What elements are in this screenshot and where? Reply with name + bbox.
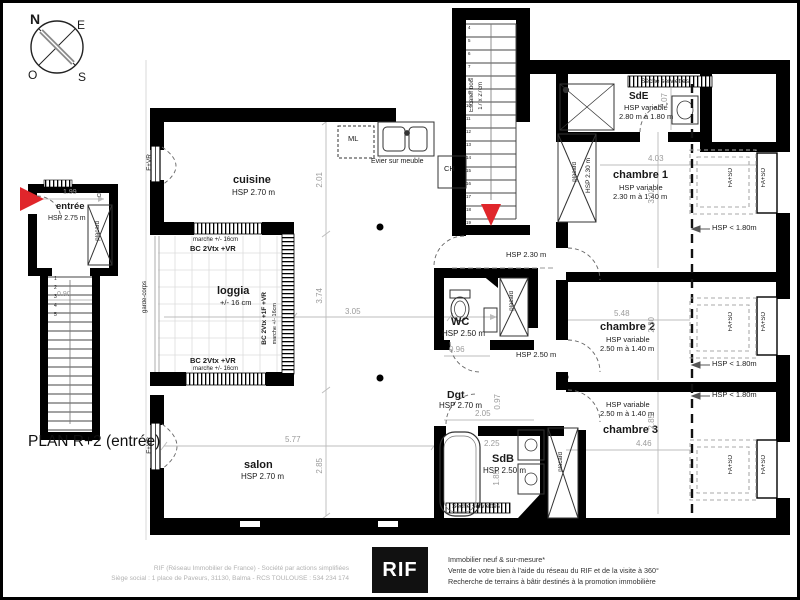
step-14: 14	[466, 156, 471, 161]
dim-salon-width: 5.77	[285, 436, 301, 444]
room-hsp-salon: HSP 2.70 m	[241, 473, 284, 481]
dim-cuisine-height: 2.01	[316, 172, 324, 188]
step-12: 12	[466, 130, 471, 135]
door-arcs	[37, 104, 668, 469]
room-hsp-chambre2: HSP variable	[606, 336, 650, 344]
dim-chambre2-height: 2.30	[648, 317, 656, 333]
footer-service-line2: Vente de votre bien à l'aide du réseau d…	[448, 566, 659, 577]
entry-step-4: 4	[54, 304, 57, 309]
rif-logo: RIF	[372, 547, 428, 593]
zone-label-faso-2: FA+SO	[728, 312, 734, 332]
entry-step-1: 1	[54, 277, 57, 282]
room-hsp-chambre3: HSP variable	[606, 401, 650, 409]
room-hsp-chambre1: HSP variable	[619, 184, 663, 192]
dim-chambre3-width: 4.46	[636, 440, 652, 448]
room-label-loggia: loggia	[217, 286, 249, 297]
zone-label-faso-1: FA+SO	[728, 168, 734, 188]
step-13: 13	[466, 143, 471, 148]
room-hsp-entree: HSP 2.75 m	[48, 215, 86, 222]
note-seche-serviettes-sde: Sèche serviettes	[641, 79, 689, 86]
placard-label-sdb: placard	[558, 452, 564, 472]
room-note-loggia: +/- 16 cm	[220, 299, 251, 307]
step-17: 17	[466, 195, 471, 200]
footer-legal-line1: RIF (Réseau Immobilier de France) - Soci…	[55, 564, 349, 574]
dim-wc-door: 0.96	[449, 346, 465, 354]
note-seche-serviettes-sdb: Sèche serviettes	[452, 504, 500, 511]
room-label-sde: SdE	[629, 92, 648, 102]
placard-label-wc: placard	[509, 291, 515, 311]
dim-chambre3-height: 2.85	[648, 414, 656, 430]
floorplan-page: N E O S 1.99 entrée HSP 2.75 m placard C…	[0, 0, 800, 600]
dim-sde-height: 1.07	[661, 93, 669, 109]
note-marche-right: marche +/- 16cm	[273, 303, 279, 344]
dim-sejour-height: 3.74	[316, 288, 324, 304]
room-hsp-wc: HSP 2.50 m	[442, 330, 485, 338]
step-10: 10	[466, 104, 471, 109]
dim-sejour-width: 3.05	[345, 308, 361, 316]
compass-e: E	[77, 19, 85, 31]
dim-chambre1-width: 4.03	[648, 155, 664, 163]
window-label-fvr-salon: F+VR	[147, 437, 154, 454]
placard-label-chambre1: placard	[572, 162, 578, 182]
note-marche-bottom: marche +/- 16cm	[193, 366, 238, 372]
room-label-chambre1: chambre 1	[613, 170, 668, 181]
window-label-faso-3: FA+SO	[761, 455, 767, 475]
step-18: 18	[466, 208, 471, 213]
step-6: 6	[468, 52, 471, 57]
note-marche-top: marche +/- 16cm	[193, 237, 238, 243]
note-escalier-2: 17 x 27cm	[478, 82, 484, 110]
dim-sdb-height: 1.85	[493, 470, 501, 486]
dim-chambre2-width: 5.48	[614, 310, 630, 318]
window-label-faso-2: FA+SO	[761, 312, 767, 332]
step-16: 16	[466, 182, 471, 187]
room-range-chambre1: 2.30 m à 1.40 m	[613, 193, 667, 201]
step-8: 8	[468, 78, 471, 83]
footer-service-line1: Immobilier neuf & sur-mesure*	[448, 555, 659, 566]
note-hsp230-corridor: HSP 2.30 m	[506, 251, 546, 259]
room-label-entree: entrée	[56, 202, 85, 212]
step-9: 9	[468, 91, 471, 96]
room-hsp-sdb: HSP 2.50 m	[483, 467, 526, 475]
zone-label-faso-3: FA+SO	[728, 455, 734, 475]
room-range-sde: 2.80 m à 1.80 m	[619, 113, 673, 121]
room-label-cuisine: cuisine	[233, 175, 271, 186]
dim-dgt-width: 2.05	[475, 410, 491, 418]
footer-services: Immobilier neuf & sur-mesure* Vente de v…	[448, 555, 659, 587]
dim-entry-width: 1.99	[63, 189, 77, 196]
compass-n: N	[30, 12, 40, 26]
dim-salon-height: 2.85	[316, 458, 324, 474]
footer-service-line3: Recherche de terrains à bâtir destinés à…	[448, 577, 659, 588]
placard-label-entry: placard	[95, 221, 101, 241]
footer-legal: RIF (Réseau Immobilier de France) - Soci…	[55, 564, 349, 584]
dim-dgt-height: 0.97	[494, 394, 502, 410]
room-label-dgt: Dgt	[447, 390, 465, 401]
note-hsp250-corridor: HSP 2.50 m	[516, 351, 556, 359]
plan-title: PLAN R+2 (entrée)	[28, 433, 160, 451]
room-label-salon: salon	[244, 460, 273, 471]
dim-chambre1-height: 3.02	[648, 188, 656, 204]
note-hsp-lt180-chambre2: HSP < 1.80m	[712, 360, 757, 368]
step-5: 5	[468, 39, 471, 44]
compass-icon	[31, 21, 83, 73]
compass-s: S	[78, 71, 86, 83]
note-garde-corps: garde-corps	[142, 281, 148, 313]
note-hsp-lt180-chambre1: HSP < 1.80m	[712, 224, 757, 232]
fixtures	[88, 84, 698, 518]
dim-entry-stairs: 0.90	[57, 291, 71, 298]
room-label-wc: WC	[451, 317, 469, 328]
ch-label-entry: CH	[98, 190, 103, 197]
stair-down-arrow-icon	[481, 204, 501, 226]
step-11: 11	[466, 117, 471, 122]
step-19: 19	[466, 221, 471, 226]
note-hsp230-chambre1: HSP 2.30 m	[586, 158, 593, 193]
window-label-fvr-cuisine: F+VR	[147, 154, 154, 171]
step-7: 7	[468, 65, 471, 70]
room-range-chambre2: 2.50 m à 1.40 m	[600, 345, 654, 353]
stairs-main	[466, 24, 516, 219]
step-4: 4	[468, 26, 471, 31]
room-hsp-cuisine: HSP 2.70 m	[232, 189, 275, 197]
footer-legal-line2: Siège social : 1 place de Paveurs, 31130…	[55, 574, 349, 584]
room-label-sdb: SdB	[492, 454, 514, 465]
entry-step-5: 5	[54, 313, 57, 318]
step-15: 15	[466, 169, 471, 174]
window-label-bc2vtx1f: BC 2Vtx +1F +VR	[262, 292, 269, 345]
compass-o: O	[28, 69, 37, 81]
rif-logo-text: RIF	[382, 559, 417, 582]
appliance-ml: ML	[348, 135, 358, 143]
window-label-faso-1: FA+SO	[761, 168, 767, 188]
floorplan-drawing	[0, 0, 800, 600]
window-label-bc2vtx-bottom: BC 2Vtx +VR	[190, 357, 236, 365]
note-evier: Evier sur meuble	[371, 158, 424, 165]
window-label-bc2vtx-top: BC 2Vtx +VR	[190, 245, 236, 253]
appliance-ch: CH	[444, 165, 455, 173]
dim-sdb-width: 2.25	[484, 440, 500, 448]
note-hsp-lt180-chambre3: HSP < 1.80m	[712, 391, 757, 399]
